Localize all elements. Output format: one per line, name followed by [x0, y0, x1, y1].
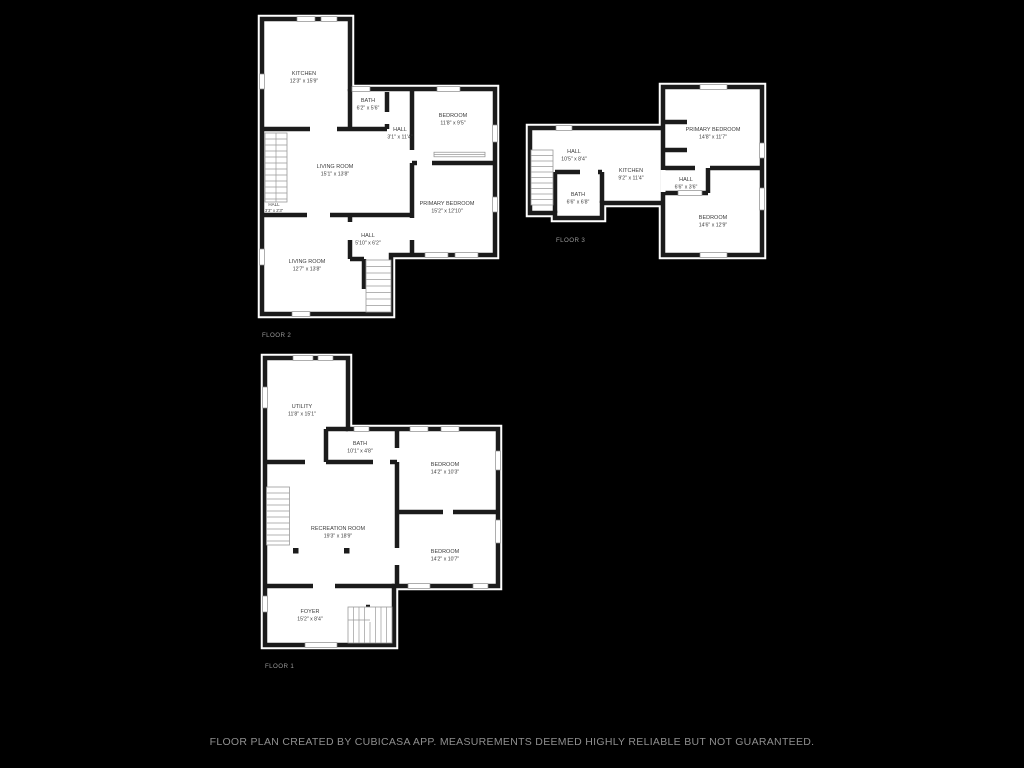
room-dims-kitchen: 12'3" x 15'9" [290, 79, 319, 85]
floor-2-plan: KITCHEN 12'3" x 15'9" BATH 6'2" x 5'6" H… [260, 17, 498, 339]
room-label-foyer: FOYER [301, 609, 320, 615]
room-dims-living-room-2: 12'7" x 13'8" [293, 267, 322, 273]
room-dims-hall-small: 3'3" x 2'3" [265, 208, 284, 213]
room-dims-hall-2: 6'6" x 3'6" [675, 185, 698, 191]
room-label-living-room-2: LIVING ROOM [289, 259, 326, 265]
room-dims-primary-bedroom: 14'8" x 11'7" [699, 135, 727, 141]
room-label-bedroom: BEDROOM [431, 462, 460, 468]
floor-1-outline-halo [265, 358, 498, 645]
room-dims-utility: 11'8" x 15'1" [288, 412, 316, 418]
footer-disclaimer: FLOOR PLAN CREATED BY CUBICASA APP. MEAS… [0, 736, 1024, 748]
room-dims-bath: 10'1" x 4'8" [347, 449, 373, 455]
room-dims-bath: 6'2" x 5'6" [357, 106, 380, 112]
room-dims-hall: 3'1" x 11'4" [387, 135, 412, 141]
room-label-hall-2: HALL [679, 177, 693, 183]
room-dims-bath: 6'6" x 6'8" [567, 200, 590, 206]
room-label-bath: BATH [571, 192, 585, 198]
room-label-hall: HALL [567, 149, 581, 155]
floor-1-post [293, 548, 299, 554]
room-label-kitchen: KITCHEN [292, 71, 316, 77]
floorplan-page: KITCHEN 12'3" x 15'9" BATH 6'2" x 5'6" H… [0, 0, 1024, 768]
floor-3-hall-door [678, 191, 702, 196]
room-label-bedroom: BEDROOM [699, 215, 728, 221]
floor-1-stairs-recreation [267, 487, 290, 545]
room-dims-hall-center: 5'10" x 6'2" [355, 241, 381, 247]
floor-3-outline-halo-right [663, 87, 762, 255]
floor-3-label: FLOOR 3 [556, 237, 585, 244]
floor-1-post [344, 548, 350, 554]
room-label-bath: BATH [361, 98, 375, 104]
room-label-primary-bedroom: PRIMARY BEDROOM [420, 201, 475, 207]
room-dims-bedroom: 11'8" x 9'5" [440, 121, 465, 127]
room-label-hall: HALL [393, 127, 407, 133]
floorplan-svg: KITCHEN 12'3" x 15'9" BATH 6'2" x 5'6" H… [0, 0, 1024, 768]
room-dims-bedroom: 14'2" x 10'3" [431, 470, 460, 476]
floor-2-stairs-left [265, 133, 287, 202]
room-dims-hall: 10'5" x 8'4" [561, 157, 587, 163]
room-label-bedroom: BEDROOM [439, 113, 468, 119]
room-label-bedroom-2: BEDROOM [431, 549, 460, 555]
floor-2-label: FLOOR 2 [262, 332, 291, 339]
room-label-kitchen: KITCHEN [619, 168, 643, 174]
room-label-living-room: LIVING ROOM [317, 164, 354, 170]
room-dims-recreation-room: 19'3" x 18'9" [324, 534, 353, 540]
room-label-bath: BATH [353, 441, 367, 447]
room-label-hall-center: HALL [361, 233, 375, 239]
floor-3-stairs [531, 150, 553, 205]
room-dims-kitchen: 9'2" x 11'4" [618, 176, 643, 182]
floor-3-kitchen-hall-opening [661, 170, 666, 192]
floor-1-label: FLOOR 1 [265, 663, 294, 670]
floor-2-closet-doors [434, 152, 485, 157]
room-dims-bedroom-2: 14'2" x 10'7" [431, 557, 460, 563]
floor-1-plan: UTILITY 11'8" x 15'1" BATH 10'1" x 4'8" … [263, 356, 501, 670]
room-dims-primary-bedroom: 15'2" x 12'10" [431, 209, 462, 215]
room-label-utility: UTILITY [292, 404, 313, 410]
room-dims-living-room: 15'1" x 13'8" [321, 172, 350, 178]
floor-2-stairs-bottom [366, 260, 391, 312]
floor-3-plan: HALL 10'5" x 8'4" KITCHEN 9'2" x 11'4" P… [530, 85, 764, 258]
room-label-primary-bedroom: PRIMARY BEDROOM [686, 127, 741, 133]
floor-1-stairs-foyer [348, 607, 392, 643]
room-label-recreation-room: RECREATION ROOM [311, 526, 366, 532]
room-label-hall-small: HALL [268, 202, 280, 207]
room-dims-bedroom: 14'6" x 12'9" [699, 223, 728, 229]
room-dims-foyer: 15'2" x 8'4" [297, 617, 323, 623]
